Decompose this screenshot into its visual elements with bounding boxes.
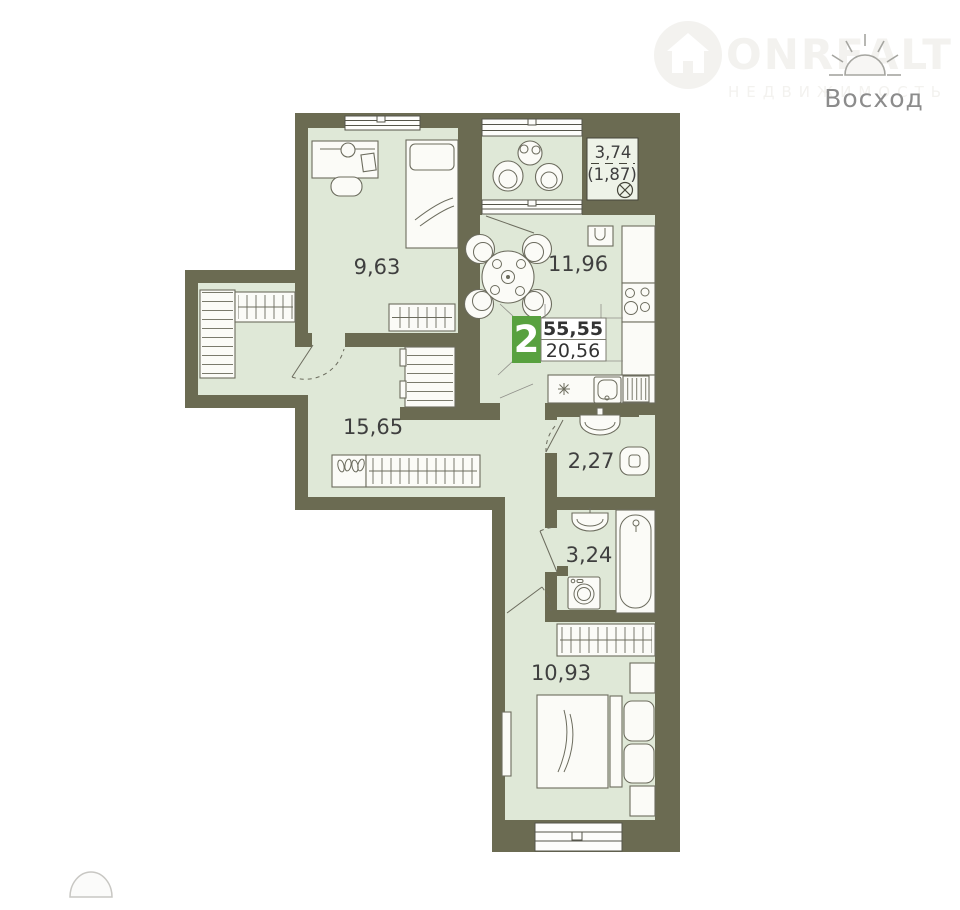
- balcony-chair: [493, 161, 523, 191]
- sink: [594, 377, 621, 403]
- dishwasher: [623, 376, 649, 402]
- pillow: [624, 744, 654, 783]
- kitchen-sink-cabinet: [588, 226, 613, 246]
- rooms-count: 2: [514, 318, 540, 361]
- desk-chair: [331, 177, 362, 196]
- floor-plan-page: ONREALT НЕДВИЖИМОСТЬ Восход: [0, 0, 960, 910]
- fridge-symbol: [558, 383, 570, 395]
- nightstand: [630, 663, 655, 693]
- balcony-chair: [536, 164, 563, 191]
- double-bed: [537, 695, 654, 788]
- bedroom-window: [535, 823, 622, 851]
- nightstand: [630, 786, 655, 816]
- balcony-area-label: 3,74: [595, 143, 632, 162]
- balcony-glazing-top: [482, 119, 582, 136]
- hallway-area-label: 15,65: [343, 415, 403, 439]
- washing-machine: [568, 577, 600, 609]
- total-area: 55,55: [543, 318, 603, 340]
- kitchen-counter: [622, 226, 655, 283]
- shoe-cabinet: [332, 455, 366, 487]
- balcony-label-box: 3,74 (1,87): [587, 138, 638, 200]
- toilet: [620, 447, 649, 475]
- watermark-logo-text: ONREALT: [726, 30, 953, 79]
- wardrobe: [389, 304, 455, 331]
- storage-closet: [400, 347, 455, 407]
- project-name: Восход: [824, 84, 924, 113]
- cup: [532, 146, 540, 154]
- bathroom-area-label: 3,24: [566, 543, 613, 567]
- stove: [622, 283, 655, 322]
- corner-watermark-arc: [70, 872, 112, 897]
- room-area-label: 9,63: [354, 255, 401, 279]
- closet-wall: [400, 407, 500, 420]
- balcony-area-reduced-label: (1,87): [587, 165, 637, 184]
- bedroom-area-label: 10,93: [531, 661, 591, 685]
- desk: [312, 141, 378, 178]
- kitchen-area-label: 11,96: [548, 252, 608, 276]
- bedroom-wardrobe: [557, 624, 655, 656]
- room-window: [345, 116, 420, 130]
- wc-area-label: 2,27: [568, 449, 615, 473]
- kitchen-counter-lower: [622, 322, 655, 375]
- floor-plan-canvas: ONREALT НЕДВИЖИМОСТЬ Восход: [0, 0, 960, 910]
- hall-wardrobe: [366, 455, 480, 487]
- mirror: [502, 712, 511, 776]
- bathtub: [616, 510, 655, 613]
- single-bed: [406, 140, 458, 248]
- kitchen-bottom-counter: [548, 375, 655, 403]
- cup: [520, 145, 528, 153]
- pillow: [624, 701, 654, 741]
- living-area: 20,56: [546, 340, 600, 362]
